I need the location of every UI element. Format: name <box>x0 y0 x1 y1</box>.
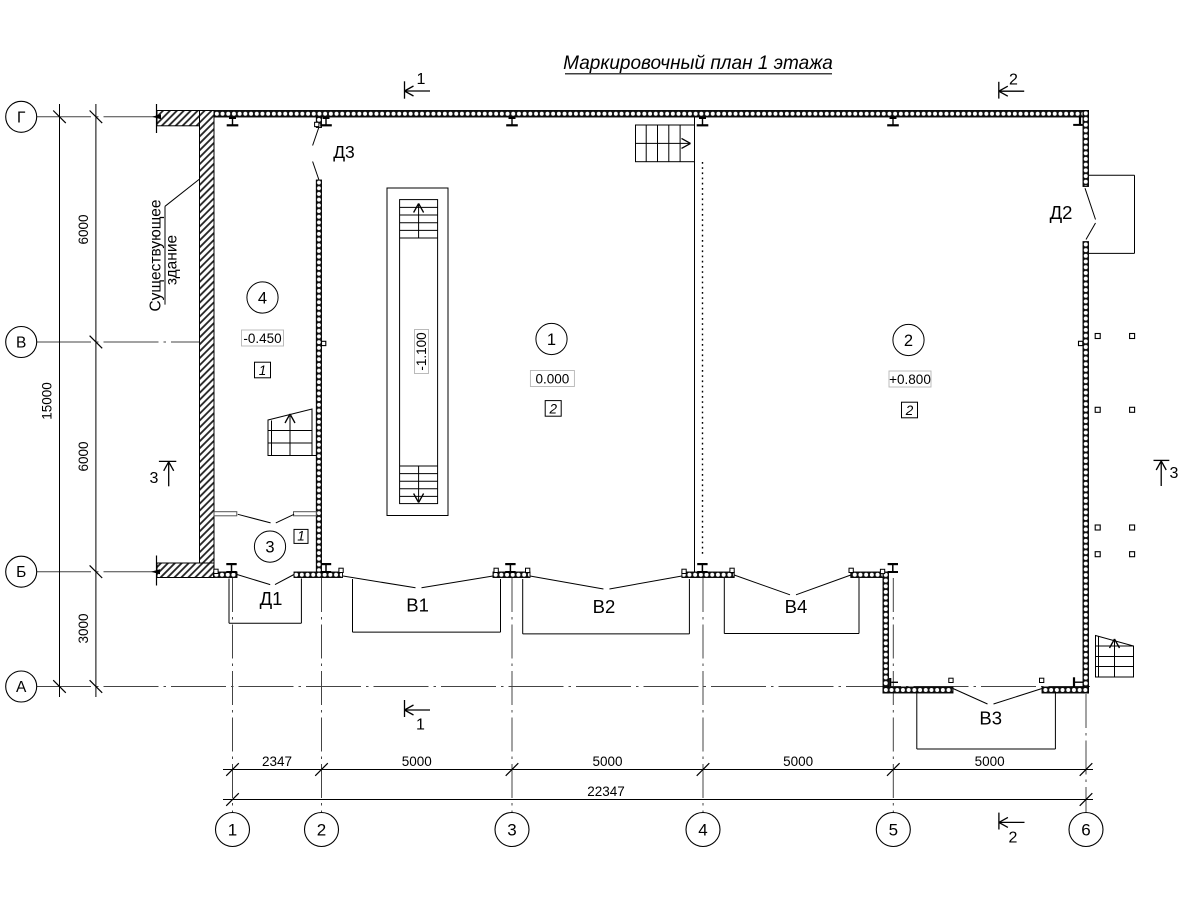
svg-text:Маркировочный план 1 этажа: Маркировочный план 1 этажа <box>563 53 833 74</box>
svg-text:здание: здание <box>164 235 181 285</box>
svg-text:22347: 22347 <box>587 784 625 799</box>
svg-text:В3: В3 <box>979 708 1002 729</box>
svg-text:3000: 3000 <box>76 613 91 643</box>
svg-text:+0.800: +0.800 <box>889 372 931 387</box>
svg-text:3: 3 <box>507 821 516 840</box>
svg-text:5000: 5000 <box>402 754 432 769</box>
svg-text:Существующее: Существующее <box>148 199 165 311</box>
svg-text:2: 2 <box>317 821 326 840</box>
svg-text:Д1: Д1 <box>260 588 283 609</box>
svg-text:6000: 6000 <box>76 214 91 244</box>
svg-text:-1.100: -1.100 <box>414 332 429 370</box>
svg-text:А: А <box>16 679 27 696</box>
svg-text:В4: В4 <box>785 596 808 617</box>
svg-text:1: 1 <box>417 71 426 88</box>
svg-text:2: 2 <box>904 332 913 350</box>
svg-text:5000: 5000 <box>975 754 1005 769</box>
svg-text:4: 4 <box>258 289 267 307</box>
svg-text:Б: Б <box>16 564 26 581</box>
svg-text:В2: В2 <box>593 596 616 617</box>
svg-text:Д3: Д3 <box>333 142 355 162</box>
svg-text:5000: 5000 <box>592 754 622 769</box>
svg-text:1: 1 <box>228 821 237 840</box>
svg-text:3: 3 <box>1170 465 1179 482</box>
svg-text:15000: 15000 <box>40 382 55 420</box>
svg-text:1: 1 <box>547 331 556 349</box>
svg-text:3: 3 <box>265 538 274 556</box>
svg-text:В: В <box>16 335 26 352</box>
svg-text:6: 6 <box>1081 821 1090 840</box>
svg-text:-0.450: -0.450 <box>243 331 281 346</box>
svg-text:В1: В1 <box>406 595 429 616</box>
svg-text:2: 2 <box>905 403 914 418</box>
svg-text:1: 1 <box>416 717 425 734</box>
svg-text:3: 3 <box>150 470 159 487</box>
svg-text:5: 5 <box>889 821 898 840</box>
svg-text:Д2: Д2 <box>1050 202 1073 223</box>
svg-text:2: 2 <box>1009 830 1018 847</box>
svg-text:2: 2 <box>1009 72 1018 89</box>
svg-text:4: 4 <box>698 821 707 840</box>
svg-text:6000: 6000 <box>76 441 91 471</box>
svg-text:Г: Г <box>17 109 26 126</box>
svg-text:0.000: 0.000 <box>536 371 570 386</box>
svg-text:2347: 2347 <box>262 754 292 769</box>
svg-text:5000: 5000 <box>783 754 813 769</box>
svg-text:1: 1 <box>259 363 267 378</box>
svg-text:1: 1 <box>297 528 305 543</box>
svg-text:2: 2 <box>548 401 557 416</box>
